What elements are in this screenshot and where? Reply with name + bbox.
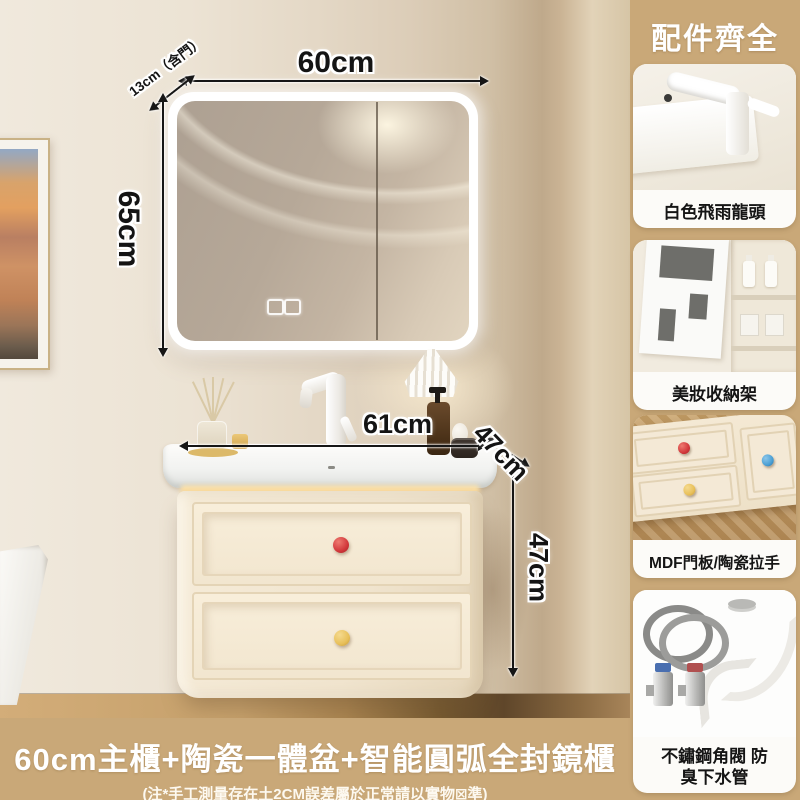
thumb-drawer-cabinet: [633, 415, 796, 522]
accessories-panel: 配件齊全 白色飛雨龍頭: [630, 0, 800, 800]
faucet-body: [326, 374, 346, 448]
mirror-door-seam: [376, 102, 378, 340]
accessory-card-faucet: 白色飛雨龍頭: [633, 64, 796, 228]
drawer-top: [192, 502, 472, 586]
accessory-caption: 白色飛雨龍頭: [633, 202, 796, 223]
dim-mirror-height-arrow: [162, 102, 164, 348]
overflow-hole: [328, 466, 335, 469]
faucet-thumbnail: [633, 64, 796, 190]
mirror-touch-defog-icon: [267, 299, 284, 315]
thumb-angle-valve-red: [685, 672, 705, 706]
accessory-card-storage: 美妝收納架: [633, 240, 796, 410]
dim-cabinet-height: 47cm: [523, 530, 554, 606]
accessory-caption: MDF門板/陶瓷拉手: [633, 554, 796, 573]
mirror-touch-light-icon: [284, 299, 301, 315]
storage-thumbnail: [633, 240, 796, 372]
accessory-card-handles: MDF門板/陶瓷拉手: [633, 415, 796, 578]
wall-artwork: [0, 138, 50, 370]
dim-basin-width: 61cm: [363, 409, 443, 440]
thumb-cabinet-door: [639, 240, 729, 359]
thumb-faucet-outlet: [664, 94, 672, 102]
ceramic-knob-yellow: [334, 630, 350, 646]
bathroom-scene: 60cm 13cm（含門） 65cm 61cm 47cm 47cm: [0, 0, 630, 718]
ceramic-knob-red: [333, 537, 349, 553]
handles-thumbnail: [633, 415, 796, 540]
faucet-spout: [299, 387, 313, 408]
vanity-cabinet: [177, 491, 483, 698]
dim-basin-width-arrow: [188, 445, 478, 447]
product-image: 60cm 13cm（含門） 65cm 61cm 47cm 47cm 配件齊全 白…: [0, 0, 800, 800]
accessory-caption: 不鏽鋼角閥 防臭下水管: [633, 746, 796, 789]
accessory-card-plumbing: 不鏽鋼角閥 防臭下水管: [633, 590, 796, 793]
mirror-glass: [177, 101, 469, 341]
dim-mirror-width-arrow: [187, 80, 480, 82]
gold-tray: [188, 448, 238, 457]
dim-mirror-height: 65cm: [111, 189, 145, 269]
banner-title: 60cm主櫃+陶瓷一體盆+智能圓弧全封鏡櫃: [0, 734, 630, 779]
thumb-faucet-body: [726, 92, 749, 155]
dim-cabinet-height-arrow: [512, 473, 514, 668]
drawer-bottom: [192, 592, 472, 680]
thumb-angle-valve-blue: [653, 672, 673, 706]
panel-title: 配件齊全: [630, 14, 800, 58]
bottom-banner: 60cm主櫃+陶瓷一體盆+智能圓弧全封鏡櫃 (注*手工測量存在土2CM誤差屬於正…: [0, 718, 630, 800]
mirror-cabinet: [168, 92, 478, 350]
bathtub: [0, 545, 48, 705]
reed-diffuser-sticks: [197, 375, 227, 423]
accessory-caption: 美妝收納架: [633, 384, 796, 405]
banner-note: (注*手工測量存在土2CM誤差屬於正常請以實物⊠準): [0, 783, 630, 800]
thumb-shelf: [731, 240, 796, 372]
plumbing-thumbnail: [633, 590, 796, 737]
thumb-drain-flange: [728, 599, 756, 609]
dim-mirror-width: 60cm: [296, 46, 376, 80]
